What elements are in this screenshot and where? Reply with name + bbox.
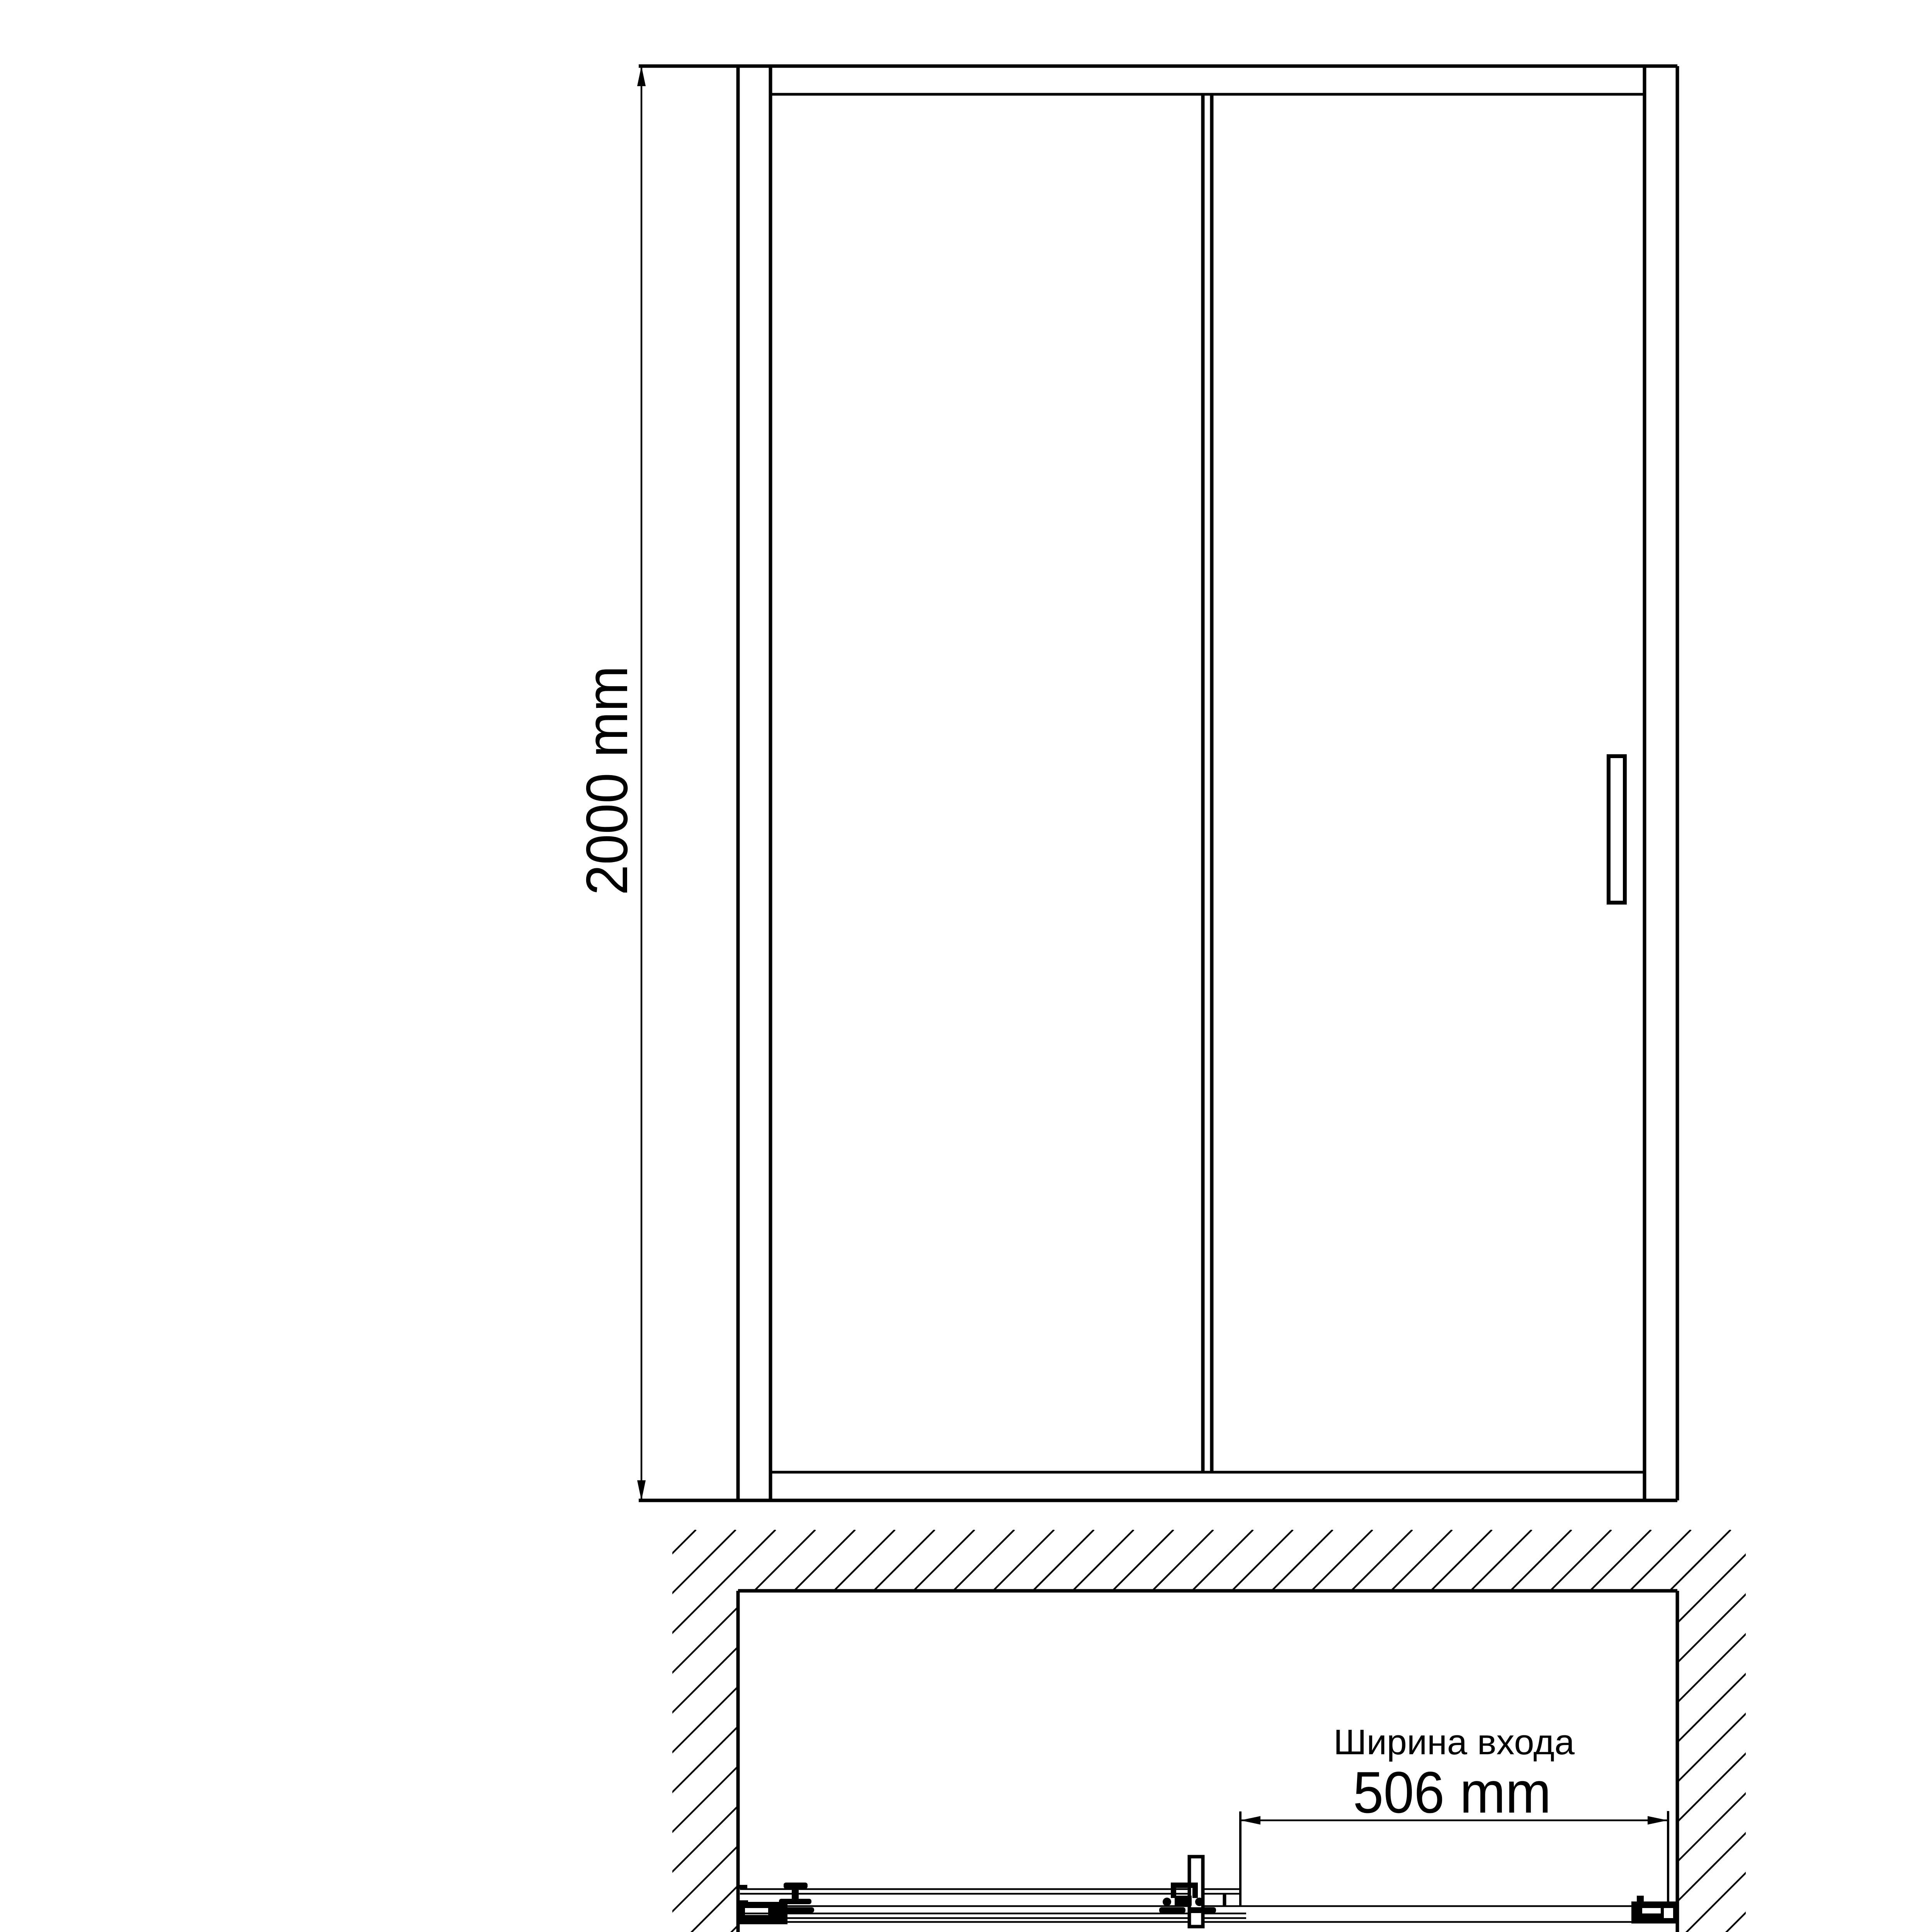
svg-text:2000 mm: 2000 mm [574, 666, 640, 895]
svg-text:506 mm: 506 mm [1353, 1760, 1551, 1825]
svg-text:Ширина входа: Ширина входа [1333, 1723, 1575, 1762]
